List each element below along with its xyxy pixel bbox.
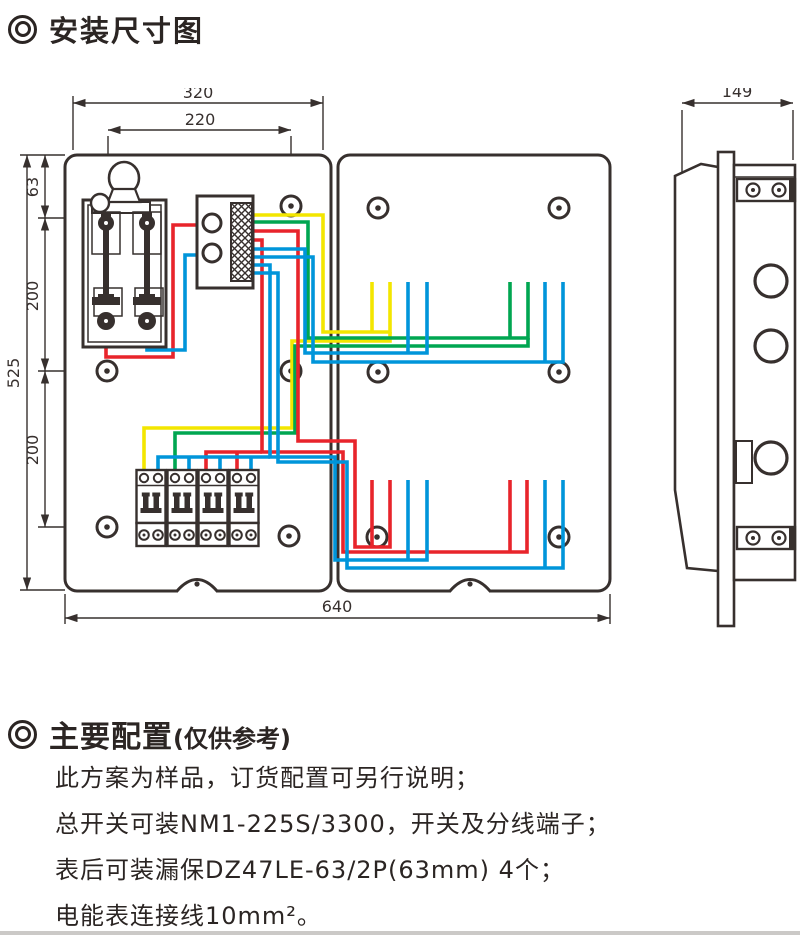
breaker-unit [137,470,166,546]
mounting-hole [279,526,299,546]
switch-handle-neck [108,189,140,202]
installation-dimension-diagram: 320 220 63 200 200 525 640 149 [0,88,800,633]
dim-top-outer: 320 [183,88,214,102]
breaker-unit [199,470,228,546]
section-marker-icon [8,15,37,44]
dimension-section-header: 安装尺寸图 [8,8,204,50]
dim-left-bottom: 200 [23,435,42,466]
dim-top-inner: 220 [185,110,216,129]
bracket-screw [773,184,786,197]
dim-left-mid: 200 [23,281,42,312]
config-section-subtitle: (仅供参考) [173,725,291,753]
breaker-row [137,470,259,546]
config-section-header: 主要配置(仅供参考) [8,712,291,756]
terminal-block [197,196,253,288]
mounting-hole [97,361,117,381]
terminal-screw [203,244,221,262]
dim-left-overall: 525 [4,358,23,389]
mounting-hole [368,362,388,382]
side-latch [736,441,752,483]
bracket-screw [747,532,760,545]
config-line: 总开关可装NM1-225S/3300，开关及分线端子； [55,808,775,840]
config-text-block: 此方案为样品，订货配置可另行说明； 总开关可装NM1-225S/3300，开关及… [55,762,775,946]
config-line: 表后可装漏保DZ47LE-63/2P(63mm) 4个； [55,854,775,886]
bracket-screw [773,532,786,545]
bracket-screw [747,184,760,197]
breaker-unit [230,470,259,546]
mounting-hole [549,362,569,382]
cable-knockout [755,330,787,362]
mounting-hole [549,198,569,218]
mounting-hole [368,198,388,218]
section-marker-icon [8,720,37,749]
cabinet-side-view [675,152,795,626]
mounting-hole [549,527,569,547]
page-edge-line [0,931,800,935]
mounting-hole [281,196,301,216]
terminal-strip [231,203,252,281]
side-body [734,165,795,580]
terminal-screw [203,214,221,232]
cable-knockout [755,265,787,297]
side-mounting-rail [718,152,734,626]
config-line: 此方案为样品，订货配置可另行说明； [55,762,775,794]
dimension-section-title: 安装尺寸图 [49,8,204,50]
mounting-hole [367,527,387,547]
breaker-unit [168,470,197,546]
cable-knockout [755,442,787,474]
dim-bottom-width: 640 [322,597,353,616]
config-section-title: 主要配置 [49,720,173,755]
mounting-hole [97,517,117,537]
side-door-profile [675,164,718,571]
switch-pivot [91,194,109,212]
dim-side-depth: 149 [722,88,753,101]
config-line: 电能表连接线10mm²。 [55,900,775,932]
dim-left-top: 63 [23,177,42,197]
